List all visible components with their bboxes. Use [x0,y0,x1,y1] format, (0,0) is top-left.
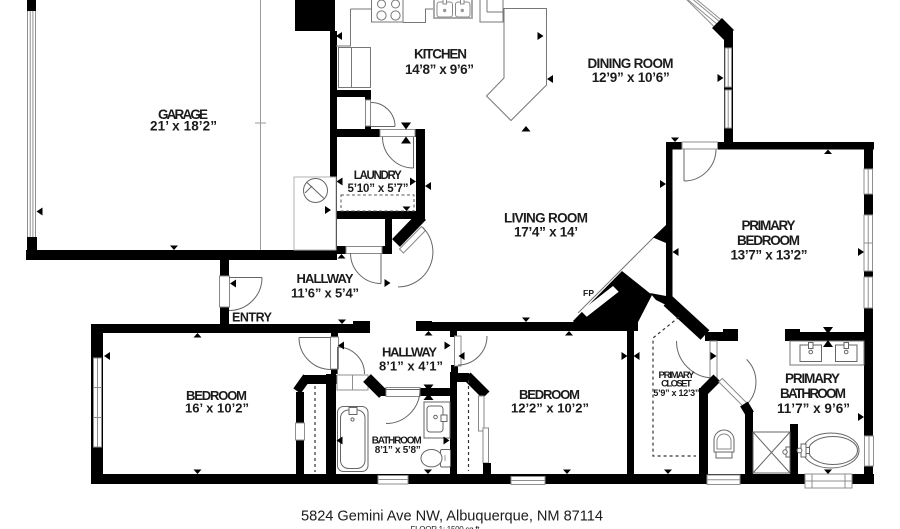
svg-text:5824 Gemini Ave NW, Albuquerqu: 5824 Gemini Ave NW, Albuquerque, NM 8711… [301,509,603,525]
svg-text:13’7” x 13’2”: 13’7” x 13’2” [731,248,808,263]
svg-text:BATHROOM: BATHROOM [780,386,846,401]
svg-text:HALLWAY: HALLWAY [297,271,354,286]
svg-text:12’9” x 10’6”: 12’9” x 10’6” [592,70,670,85]
svg-text:5’9” x 12’3”: 5’9” x 12’3” [653,388,699,398]
svg-text:17’4” x 14’: 17’4” x 14’ [514,225,578,240]
svg-text:11’6” x 5’4”: 11’6” x 5’4” [291,286,359,301]
svg-text:LIVING ROOM: LIVING ROOM [504,211,588,226]
svg-text:16’ x 10’2”: 16’ x 10’2” [185,401,249,416]
svg-text:FLOOR 1: 1500 sq ft: FLOOR 1: 1500 sq ft [411,525,481,529]
svg-text:5’10” x 5’7”: 5’10” x 5’7” [348,183,409,195]
svg-text:ENTRY: ENTRY [232,311,273,325]
svg-text:BEDROOM: BEDROOM [737,233,800,248]
svg-text:PRIMARY: PRIMARY [742,218,796,233]
svg-text:HALLWAY: HALLWAY [382,345,437,360]
svg-text:12’2” x 10’2”: 12’2” x 10’2” [511,401,589,416]
svg-text:DINING ROOM: DINING ROOM [588,56,674,71]
svg-text:8’1” x 5’8”: 8’1” x 5’8” [375,445,421,456]
svg-text:LAUNDRY: LAUNDRY [354,170,402,182]
svg-text:14’8” x 9’6”: 14’8” x 9’6” [405,62,474,77]
svg-text:21’ x 18’2”: 21’ x 18’2” [150,119,217,134]
svg-text:11’7” x 9’6”: 11’7” x 9’6” [777,401,850,416]
svg-text:8’1” x 4’1”: 8’1” x 4’1” [379,359,443,374]
svg-text:KITCHEN: KITCHEN [414,47,467,62]
svg-text:PRIMARY: PRIMARY [785,371,840,386]
svg-text:FP: FP [583,288,594,298]
